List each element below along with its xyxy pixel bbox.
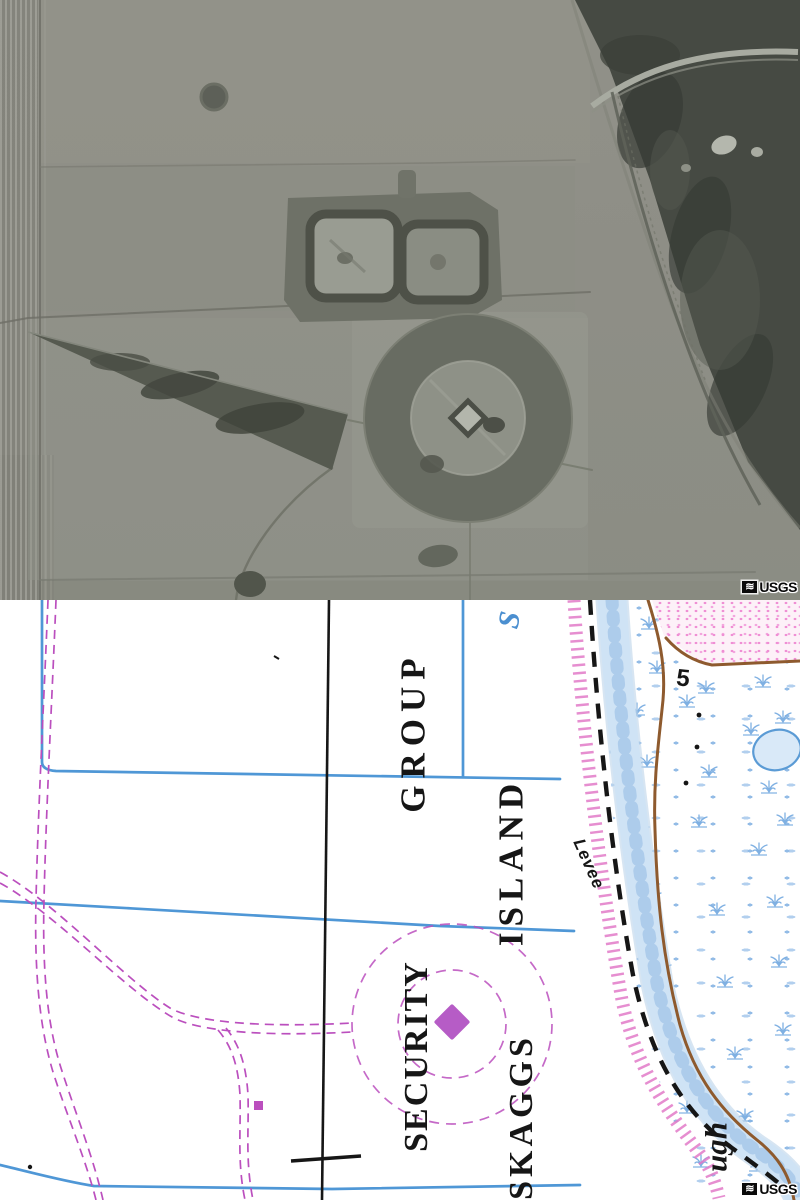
marsh-tuft-icon	[727, 1047, 743, 1059]
dot-symbol	[28, 1165, 32, 1169]
marsh-tuft-icon	[709, 903, 725, 915]
marsh-tuft-icon	[751, 843, 767, 855]
pond-west	[310, 214, 398, 298]
marsh-texture	[680, 230, 760, 370]
field-patch	[40, 581, 800, 600]
marsh-tuft-icon	[777, 813, 793, 825]
circular-facility	[364, 314, 572, 522]
marsh-tuft-icon	[717, 975, 733, 987]
dark-blob	[420, 455, 444, 473]
marsh-tuft-icon	[743, 723, 759, 735]
marsh-tuft-icon	[679, 695, 695, 707]
canal-line	[42, 600, 560, 779]
small-pond	[201, 84, 227, 110]
tiny-mark	[274, 656, 279, 659]
marsh-tuft-icon	[755, 675, 771, 687]
usgs-logo-icon: ≋	[742, 1183, 757, 1195]
marsh-tuft-icon	[767, 895, 783, 907]
usgs-logo-icon: ≋	[742, 581, 757, 593]
canal-line	[0, 901, 574, 931]
field-patch	[40, 0, 590, 163]
marsh-tuft-icon	[761, 781, 777, 793]
topo-map-panel[interactable]: GROUP ISLAND SECURITY SKAGGS Levee 5 S u…	[0, 600, 800, 1200]
unimproved-road	[44, 600, 103, 1200]
marsh-pond	[749, 724, 800, 775]
label-slough-fragment: ugh	[701, 1122, 732, 1172]
survey-line	[322, 600, 329, 1200]
survey-line-group	[274, 600, 361, 1200]
dark-blob	[483, 417, 505, 433]
label-security: SECURITY	[400, 960, 434, 1152]
aerial-photo-drawing	[0, 0, 800, 600]
marsh-tuft-icon	[775, 1023, 791, 1035]
survey-cross-tick	[291, 1156, 361, 1161]
unimproved-road	[0, 883, 352, 1034]
dot-symbol	[697, 713, 702, 718]
label-island: ISLAND	[494, 778, 529, 946]
magenta-roads	[0, 600, 352, 1200]
marsh-tuft-icon	[775, 711, 791, 723]
unimproved-road	[226, 1028, 253, 1200]
clearing-blob	[681, 164, 691, 172]
clearing-blob	[751, 147, 763, 157]
label-group: GROUP	[396, 651, 431, 812]
point-symbols	[28, 713, 702, 1170]
building-square-symbol	[254, 1101, 263, 1110]
marsh-tuft-icon	[698, 681, 714, 693]
usgs-compare-view: ≋ USGS	[0, 0, 800, 1200]
pond-stem	[398, 170, 416, 198]
marsh-dark-area	[572, 0, 800, 530]
marsh-tuft-icon	[771, 955, 787, 967]
marsh-tuft-icon	[701, 765, 717, 777]
pond-mark	[430, 254, 446, 270]
usgs-watermark: ≋ USGS	[742, 1181, 797, 1197]
marsh-tuft-icon	[691, 815, 707, 827]
usgs-watermark: ≋ USGS	[742, 579, 797, 595]
usgs-watermark-text: USGS	[759, 1181, 797, 1197]
tree-clump	[234, 571, 266, 597]
label-spot-elevation: 5	[675, 666, 691, 691]
label-skaggs: SKAGGS	[505, 1034, 539, 1200]
contour-line	[666, 638, 800, 665]
usgs-watermark-text: USGS	[759, 579, 797, 595]
unimproved-road	[0, 872, 352, 1025]
dot-symbol	[695, 745, 700, 750]
aerial-photo-panel[interactable]: ≋ USGS	[0, 0, 800, 600]
dot-symbol	[684, 781, 689, 786]
